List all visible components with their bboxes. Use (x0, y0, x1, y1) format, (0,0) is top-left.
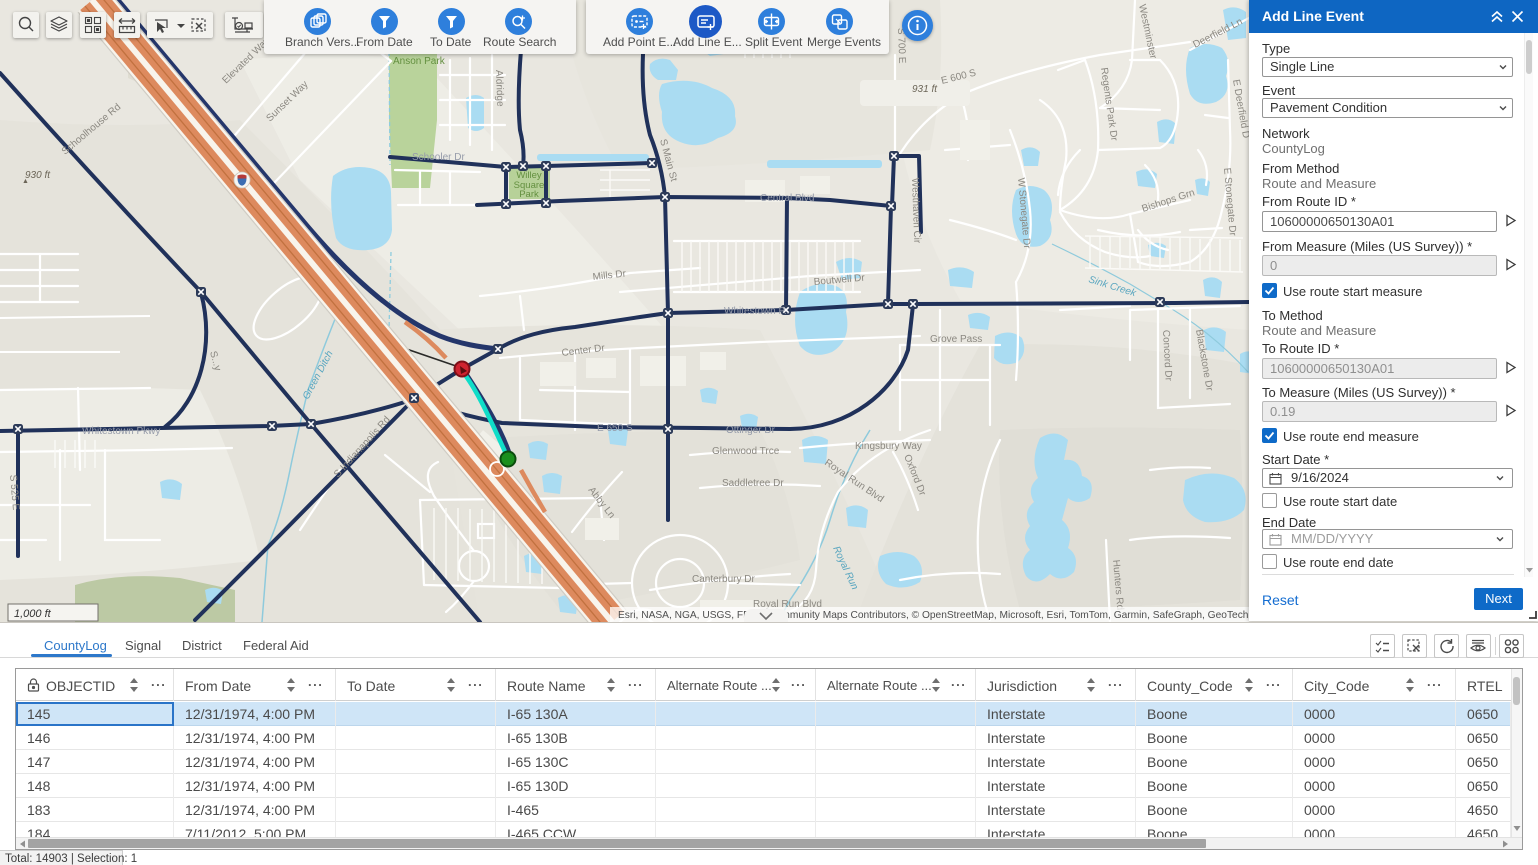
svg-text:Saddletree Dr: Saddletree Dr (722, 478, 784, 489)
svg-text:Ottinger Dr: Ottinger Dr (726, 425, 776, 436)
svg-text:Park: Park (519, 189, 539, 200)
svg-text:Central Blvd: Central Blvd (760, 193, 814, 204)
svg-text:Kingsbury Way: Kingsbury Way (855, 441, 922, 452)
svg-text:Anson Park: Anson Park (393, 56, 446, 67)
svg-text:Whitestown P...: Whitestown P... (724, 306, 792, 317)
svg-text:931 ft: 931 ft (912, 84, 938, 95)
svg-text:E 650 S: E 650 S (597, 423, 633, 434)
svg-text:1,000 ft: 1,000 ft (14, 608, 52, 620)
svg-text:Canterbury Dr: Canterbury Dr (692, 574, 755, 585)
svg-text:Grove Pass: Grove Pass (930, 334, 982, 345)
svg-text:Esri, NASA, NGA, USGS, FEMA |: Esri, NASA, NGA, USGS, FEMA | ...mmunity… (618, 610, 1262, 621)
svg-text:Glenwood Trce: Glenwood Trce (712, 446, 780, 457)
svg-text:Schooler Dr: Schooler Dr (412, 152, 465, 163)
svg-text:Aldridge: Aldridge (493, 70, 505, 107)
svg-text:Westhaven Cir: Westhaven Cir (909, 178, 922, 244)
svg-text:Whitestown Pkwy: Whitestown Pkwy (82, 426, 160, 437)
svg-text:▲: ▲ (22, 178, 29, 185)
